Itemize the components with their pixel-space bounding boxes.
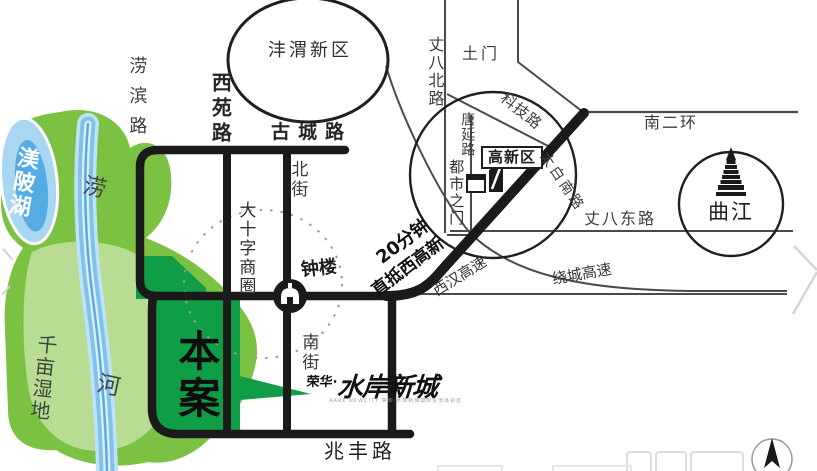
label-business-circle: 大十字商圈: [236, 201, 253, 296]
brand-logo: 荣华·水岸新城 RARE NEWCITY 荣华·水岸新城国际生活体验区: [305, 375, 464, 404]
minor-roads: [386, 0, 798, 294]
label-gucheng-road: 古城路: [271, 123, 352, 142]
brand-prefix: 荣华·: [306, 375, 338, 390]
label-zhangba-north-road: 丈八北路: [426, 36, 442, 108]
label-qujiang: 曲江: [708, 202, 754, 223]
project-pointer-wedge: [228, 373, 311, 401]
label-north-street: 北街: [288, 160, 305, 200]
fengwei-circle: [228, 0, 388, 122]
label-zhaofeng-road: 兆丰路: [324, 441, 396, 461]
compass-icon: [752, 438, 792, 471]
label-tangyan-road: 唐延路: [460, 112, 474, 157]
bell-tower-icon: [273, 279, 307, 313]
label-fengwei-new-district: 沣渭新区: [268, 42, 352, 60]
road-tumen-link: [518, 0, 583, 112]
brand-tagline: RARE NEWCITY 荣华·水岸新城国际生活体验区: [329, 399, 462, 404]
label-river-he: 河: [95, 373, 122, 401]
label-south-2nd-ring: 南二环: [644, 115, 698, 131]
label-tumen: 土门: [462, 46, 500, 62]
label-city-gate: 都市之门: [448, 159, 463, 227]
label-laobin-road: 涝滨路: [127, 56, 145, 146]
road-raocheng-expressway: [470, 233, 787, 291]
label-xiyuan-road: 西苑路: [210, 72, 230, 147]
label-south-street: 南街: [299, 333, 316, 373]
pagoda-icon: [716, 147, 746, 196]
label-zhangba-east-road: 丈八东路: [584, 211, 656, 227]
label-project-site: 本案: [174, 329, 217, 423]
location-map: 沣渭新区 涝滨路 西苑路 古城路 北街 大十字商圈 钟楼 南街 本案 兆丰路 千…: [0, 0, 817, 471]
label-bell-tower: 钟楼: [300, 258, 338, 280]
label-gaoxin-district: 高新区: [481, 146, 543, 169]
